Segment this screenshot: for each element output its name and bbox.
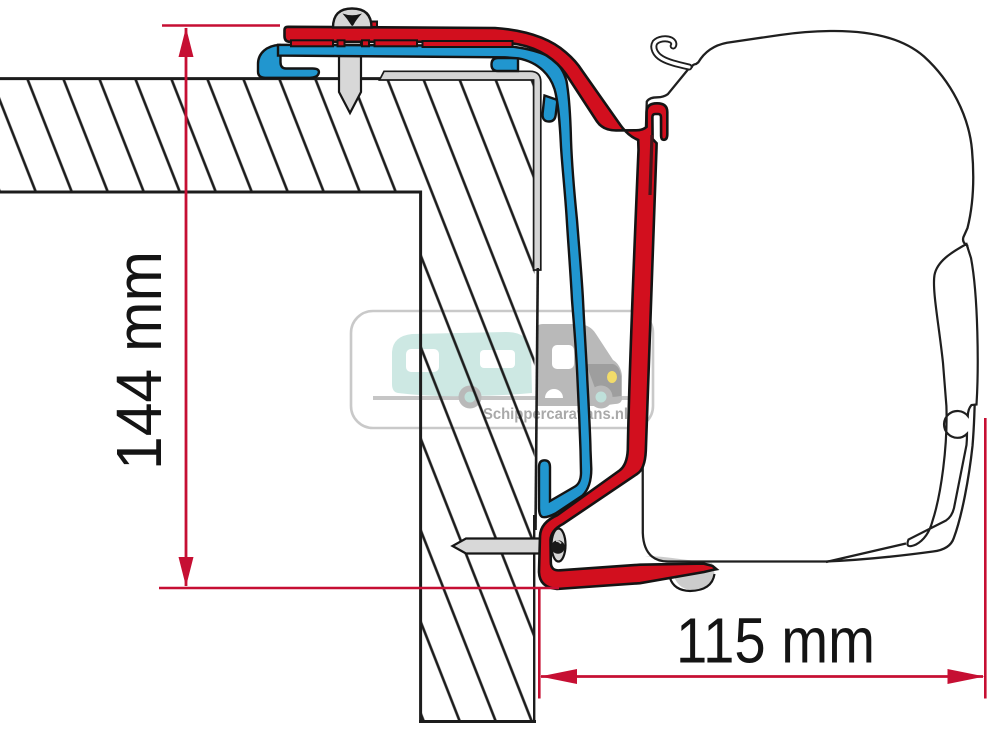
svg-text:144 mm: 144 mm	[103, 251, 175, 470]
svg-text:115 mm: 115 mm	[676, 605, 875, 677]
